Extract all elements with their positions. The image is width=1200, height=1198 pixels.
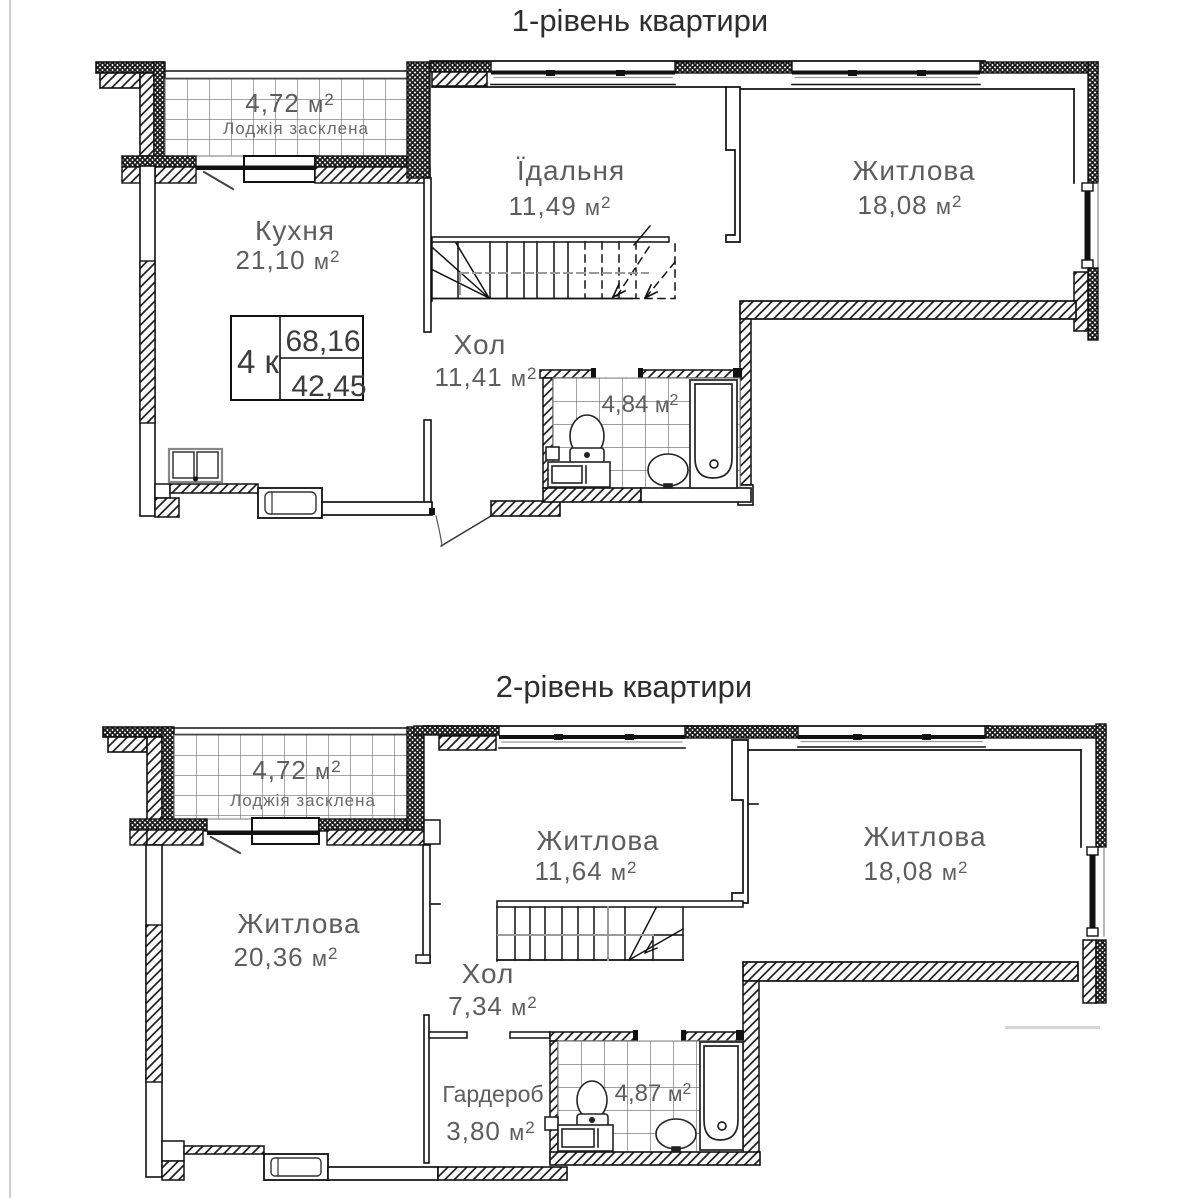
svg-text:42,45: 42,45 [291,370,366,403]
svg-text:11,41 м2: 11,41 м2 [435,362,538,392]
svg-text:4,72 м2: 4,72 м2 [252,755,341,785]
svg-text:Житлова: Житлова [852,155,975,186]
svg-text:18,08 м2: 18,08 м2 [864,856,969,886]
svg-text:4,87 м2: 4,87 м2 [615,1080,692,1107]
svg-text:Лоджія засклена: Лоджія засклена [223,119,369,138]
svg-text:11,64 м2: 11,64 м2 [535,856,638,886]
svg-text:Хол: Хол [462,958,515,989]
svg-text:Гардероб: Гардероб [442,1081,543,1107]
svg-text:Кухня: Кухня [255,215,335,246]
svg-text:3,80 м2: 3,80 м2 [446,1116,535,1146]
svg-text:7,34 м2: 7,34 м2 [448,991,537,1021]
svg-text:4 к: 4 к [237,343,280,380]
svg-text:18,08 м2: 18,08 м2 [858,190,963,220]
svg-text:4,84 м2: 4,84 м2 [602,391,679,418]
svg-text:Хол: Хол [454,329,507,360]
svg-text:Лоджія засклена: Лоджія засклена [230,791,376,810]
svg-text:Житлова: Житлова [536,825,659,856]
svg-text:11,49 м2: 11,49 м2 [509,191,612,221]
svg-text:2-рівень квартири: 2-рівень квартири [496,669,753,704]
svg-text:Їдальня: Їдальня [517,155,625,186]
svg-text:20,36 м2: 20,36 м2 [234,942,339,972]
svg-text:1-рівень квартири: 1-рівень квартири [512,3,769,38]
svg-text:68,16: 68,16 [285,325,360,358]
svg-text:Житлова: Житлова [237,908,360,939]
svg-text:21,10 м2: 21,10 м2 [236,245,341,275]
svg-text:Житлова: Житлова [863,821,986,852]
svg-text:4,72 м2: 4,72 м2 [245,88,334,118]
